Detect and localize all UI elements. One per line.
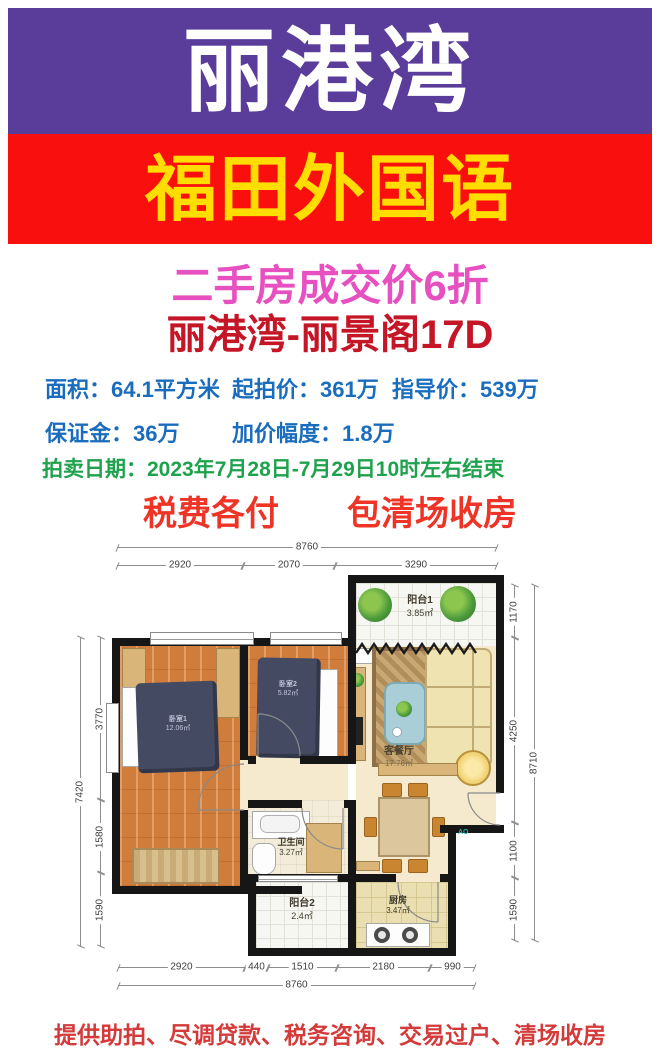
dimension-label: 8710 [528,749,539,777]
dim-top-1: 2920 [117,565,243,566]
dim-right-2: 4250 [514,638,515,823]
dimension-label: 3290 [402,560,430,571]
dim-top-2: 2070 [243,565,335,566]
dimension-label: 1590 [508,895,519,923]
kitchen-label: 厨房 3.47㎡ [366,895,430,916]
living-label: 客餐厅 17.76㎡ [364,746,434,769]
dim-bottom-2: 440 [245,967,268,968]
watermark: AO [458,829,469,836]
bedroom2-label: 卧室2 5.82㎡ [255,680,321,698]
dimension-label: 4250 [508,716,519,744]
bedroom1-label: 卧室1 12.06㎡ [143,715,213,733]
dimension-label: 1100 [508,837,519,865]
balcony1-label: 阳台1 3.85㎡ [386,595,454,619]
door-arc-layer [0,535,660,1013]
dimension-label: 3770 [94,704,105,732]
dimension-label: 2920 [166,560,194,571]
estate-name-banner: 丽港湾 [8,8,652,134]
door-arcs [198,714,500,922]
dimension-label: 440 [245,962,268,973]
dim-left-1: 3770 [100,637,101,800]
area-value: 面积：64.1平方米 [45,372,220,404]
dim-top-total: 8760 [117,547,497,548]
deposit-value: 保证金：36万 [45,416,179,448]
dimension-label: 990 [441,962,464,973]
dim-bottom-4: 2180 [337,967,430,968]
dimension-label: 2070 [275,560,303,571]
dim-right-4: 1590 [514,878,515,941]
dim-bottom-5: 990 [430,967,475,968]
dimension-label: 8760 [282,980,310,991]
auction-date: 拍卖日期：2023年7月28日-7月29日10时左右结束 [42,453,504,483]
estate-name-text: 丽港湾 [183,21,477,123]
dim-bottom-total: 8760 [118,985,475,986]
dim-bottom-1: 2920 [118,967,245,968]
dimension-label: 1170 [508,598,519,626]
dim-right-3: 1100 [514,823,515,878]
bathroom-label: 卫生间 3.27㎡ [254,837,328,858]
school-name-banner: 福田外国语 [8,134,652,244]
dimension-label: 1510 [288,962,316,973]
tax-note: 税费各付 包清场收房 [0,486,660,535]
school-name-text: 福田外国语 [145,150,515,230]
dimension-label: 8760 [293,542,321,553]
guide-price: 指导价：539万 [392,372,539,404]
auction-poster: 丽港湾 福田外国语 二手房成交价6折 丽港湾-丽景阁17D 面积：64.1平方米… [0,0,660,1050]
dimension-label: 1580 [94,822,105,850]
dim-left-3: 1590 [100,873,101,947]
dim-bottom-3: 1510 [268,967,337,968]
bid-increment: 加价幅度：1.8万 [232,416,395,448]
dim-right-total: 8710 [534,585,535,941]
balcony2-label: 阳台2 2.4㎡ [266,898,338,922]
dimension-label: 2920 [167,962,195,973]
services-footer: 提供助拍、尽调贷款、税务咨询、交易过户、清场收房 [0,1016,660,1050]
dimension-label: 2180 [369,962,397,973]
dimension-label: 7420 [74,778,85,806]
dimension-label: 1590 [94,896,105,924]
dim-left-2: 1580 [100,800,101,873]
unit-headline: 丽港湾-丽景阁17D [0,302,660,360]
floorplan: 阳台1 3.85㎡ 卧室1 12.06㎡ 卧室2 5.82㎡ 客餐厅 17.76… [0,535,660,1013]
dim-left-total: 7420 [80,637,81,947]
curtain-zigzag [356,644,476,653]
starting-price: 起拍价：361万 [232,372,379,404]
dim-top-3: 3290 [335,565,497,566]
dim-right-1: 1170 [514,585,515,638]
